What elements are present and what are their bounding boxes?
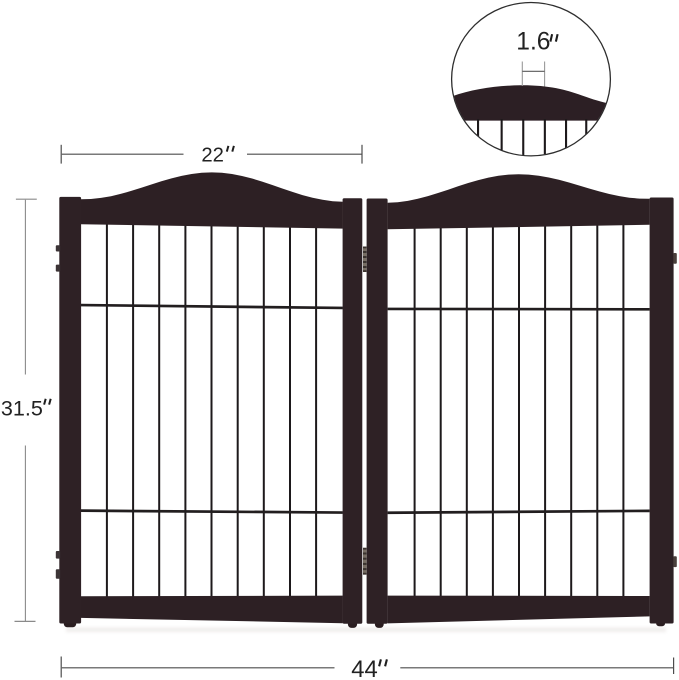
svg-text:22: 22 bbox=[201, 144, 224, 166]
svg-text:1.6: 1.6 bbox=[516, 28, 550, 55]
svg-text:44: 44 bbox=[351, 656, 377, 680]
svg-text:31.5: 31.5 bbox=[1, 395, 43, 420]
